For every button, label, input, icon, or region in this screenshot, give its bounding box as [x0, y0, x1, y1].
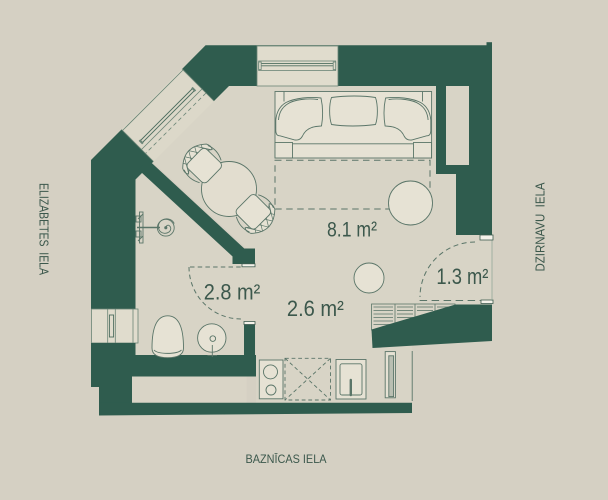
svg-text:DZIRNAVU IELA: DZIRNAVU IELA [533, 182, 548, 271]
svg-text:BAZNĪCAS IELA: BAZNĪCAS IELA [246, 452, 328, 466]
svg-text:2.6 m²: 2.6 m² [287, 296, 344, 321]
svg-text:2.8 m²: 2.8 m² [204, 280, 261, 305]
svg-text:ELIZABETES IELA: ELIZABETES IELA [37, 183, 52, 275]
svg-text:8.1 m²: 8.1 m² [327, 219, 377, 242]
svg-text:1.3 m²: 1.3 m² [436, 264, 488, 289]
